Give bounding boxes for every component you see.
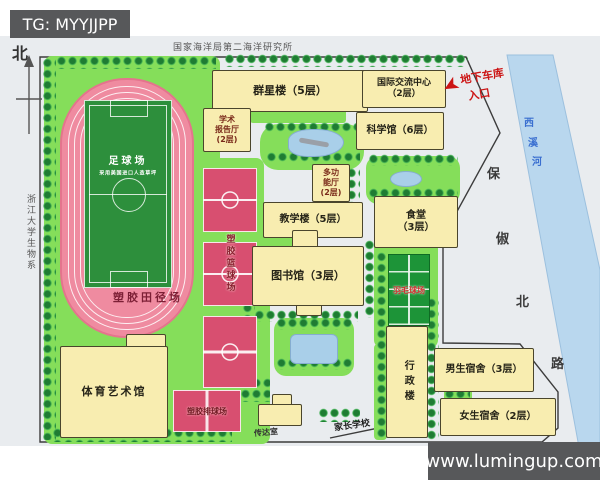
track-label: 塑胶田径场 (88, 289, 208, 305)
river-char-2: 溪 (528, 134, 538, 149)
volleyball-court-label: 塑胶排球场 (187, 406, 227, 417)
football-field-label: 足球场 (109, 156, 148, 167)
building-canteen: 食堂 （3层） (374, 196, 458, 248)
volleyball-court: 塑胶排球场 (173, 390, 241, 432)
badminton-courts-label: 羽毛球场 (389, 285, 429, 296)
campus-map: 足球场 采用美国进口人造草坪 塑胶田径场 塑胶篮球场 羽毛球场 塑胶排球场 群星… (0, 0, 600, 480)
football-field-subtitle: 采用美国进口人造草坪 (97, 169, 159, 176)
north-institute-label: 国家海洋局第二海洋研究所 (173, 40, 293, 53)
road-char-1: 保 (487, 163, 500, 182)
building-admin: 行政楼 (386, 326, 428, 438)
tree-row (56, 56, 216, 69)
pond-east (390, 171, 422, 187)
pond-south (290, 334, 338, 364)
compass-north-label: 北 (12, 40, 28, 64)
site-watermark: www.lumingup.com (428, 442, 600, 480)
building-intl-center: 国际交流中心 （2层） (362, 70, 446, 108)
road-char-2: 俶 (496, 228, 509, 247)
bottom-margin (0, 446, 428, 480)
tree-row (368, 154, 458, 166)
building-library: 图书馆（3层） (252, 246, 364, 306)
badminton-courts: 羽毛球场 (388, 254, 430, 326)
river-char-3: 河 (532, 153, 542, 168)
building-male-dorm: 男生宿舍（3层） (434, 348, 534, 392)
building-female-dorm: 女生宿舍（2层） (440, 398, 556, 436)
building-lecture-hall: 学术 报告厅 (2层) (203, 108, 251, 152)
road-char-4: 路 (551, 353, 564, 372)
building-sports-hall: 体育艺术馆 (60, 346, 168, 438)
road-char-3: 北 (516, 291, 529, 310)
football-field: 足球场 采用美国进口人造草坪 (84, 100, 172, 288)
telegram-watermark: TG: MYYJJPP (10, 10, 130, 38)
river-char-1: 西 (524, 114, 534, 129)
building-science-hall: 科学馆（6层） (356, 112, 444, 150)
gatehouse-label: 传达室 (254, 426, 279, 439)
building-gatehouse (258, 404, 302, 426)
basketball-courts: 塑胶篮球场 (203, 168, 257, 388)
tree-row (364, 240, 376, 318)
building-multi-hall: 多功 能厅 (2层) (312, 164, 350, 202)
tree-row (42, 58, 56, 440)
west-neighbor-label: 浙江大学生物系 (24, 194, 37, 271)
tree-row (224, 54, 468, 67)
building-qunxing: 群星楼（5层） (212, 70, 368, 112)
tree-row (276, 318, 352, 330)
pond-rock (299, 137, 329, 147)
basketball-courts-label: 塑胶篮球场 (224, 234, 237, 294)
